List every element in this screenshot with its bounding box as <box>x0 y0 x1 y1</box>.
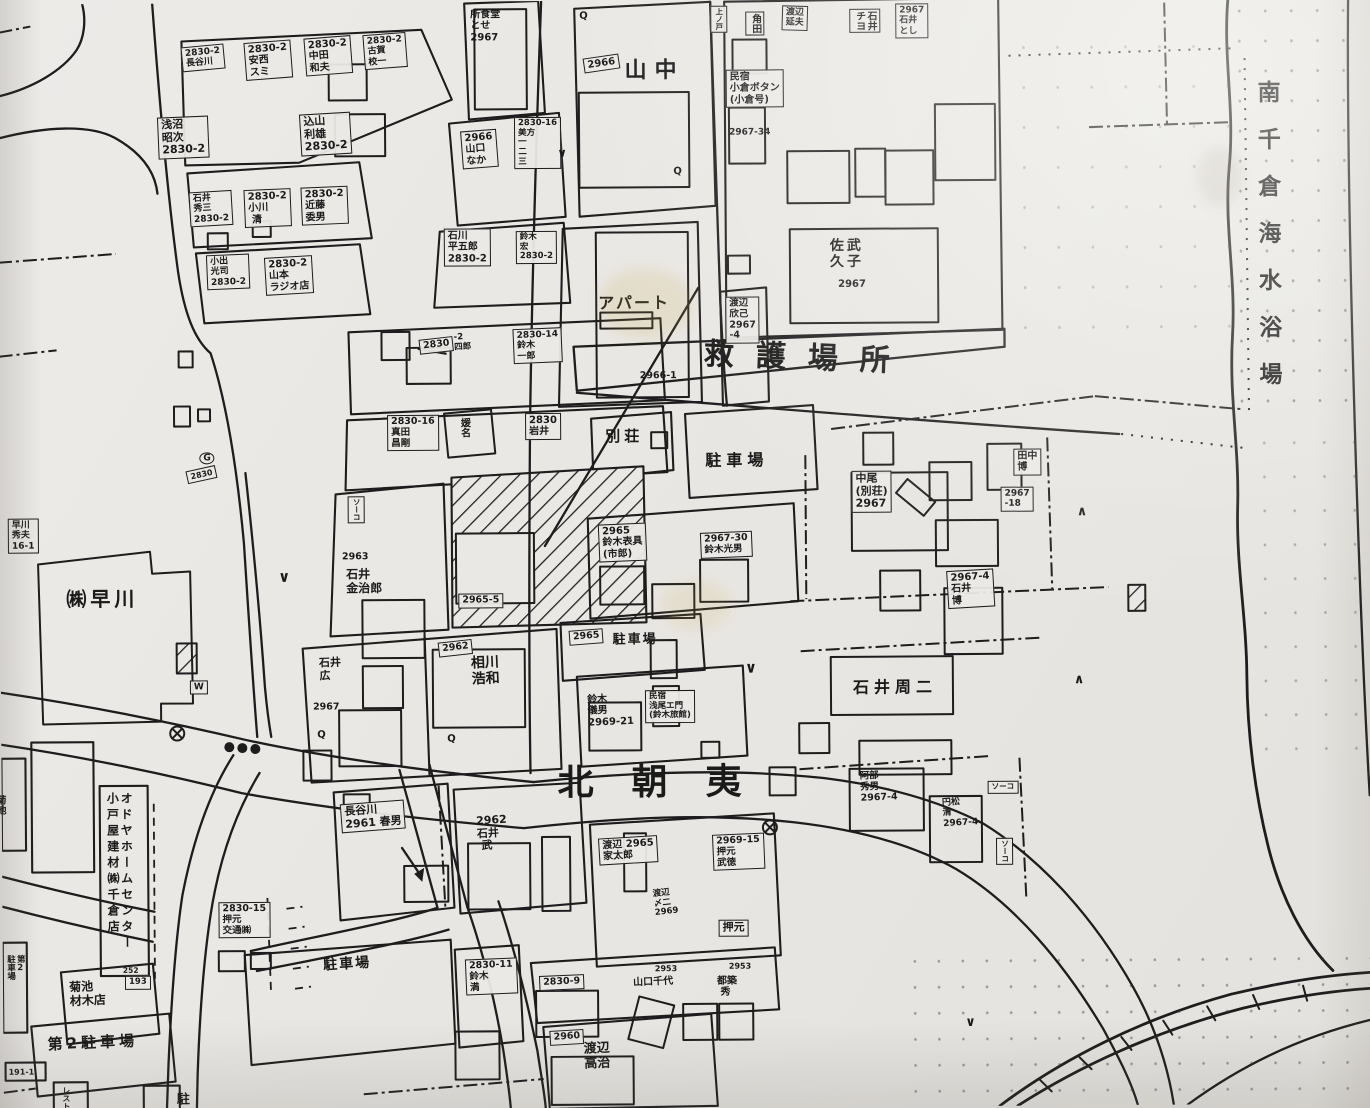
map-label: 2830-2 近藤 委男 <box>300 186 349 226</box>
map-label: 2967 石井 とし <box>895 3 928 38</box>
map-label: 2962 石井 武 <box>476 814 509 853</box>
parking-label: 駐車場 <box>705 451 768 470</box>
map-label: 2953 <box>655 964 677 973</box>
map-label: 相川 浩和 <box>471 655 500 688</box>
map-label: 山中 <box>625 58 685 83</box>
map-label: 2830-11 鈴木 満 <box>465 957 518 996</box>
map-label: 2967-34 <box>729 127 770 138</box>
scanned-map-photo: 2830-2 長谷川2830-2 安西 スミ2830-2 中田 和夫2830-2… <box>0 0 1370 1108</box>
map-label: 早川 秀夫 16-1 <box>8 519 39 554</box>
map-label: 2967 -18 <box>1001 487 1034 512</box>
district-label: 北朝夷 <box>557 761 779 804</box>
map-label: 第2 駐車場 <box>5 955 25 981</box>
parking-label: 駐車場 <box>323 956 372 975</box>
map-label: 252 <box>123 967 139 976</box>
hayakawa-company-label: ㈱早川 <box>66 588 138 611</box>
map-label: レストラン <box>62 1086 71 1108</box>
map-label: オドヤホームセンター 小戸屋建材㈱千倉店 <box>105 792 133 952</box>
map-label: ∨ <box>278 569 290 586</box>
map-label: Q <box>579 11 588 22</box>
map-label: ∧ <box>1074 673 1085 688</box>
dotted-lines <box>1008 48 1249 450</box>
map-label: 菊池 材木店 <box>69 980 106 1009</box>
map-label: 石川 平五郎 2830-2 <box>444 228 491 266</box>
map-label: 渡辺 2965 家太郎 <box>598 835 659 865</box>
map-label: 2830-9 <box>539 974 585 991</box>
map-label: Q <box>317 730 326 741</box>
map-label: 2830-2 中田 和夫 <box>303 35 353 77</box>
map-label: 所食堂 とせ 2967 <box>470 9 500 43</box>
map-label: 石井 秀三 2830-2 <box>188 190 233 227</box>
map-label: 2963 <box>342 552 369 563</box>
map-label: 2830-16 美方 一 二 三 <box>514 117 561 170</box>
map-label: 込山 利雄 2830-2 <box>299 112 352 157</box>
map-label: ∨ <box>745 660 757 677</box>
map-label: W <box>190 680 208 694</box>
map-label: 2830 岩井 <box>525 413 561 440</box>
map-label: 石井 広 <box>319 657 342 683</box>
map-label: 小出 光司 2830-2 <box>206 254 250 291</box>
map-label: 上ノ戸 <box>710 6 727 33</box>
map-label: 2965-5 <box>458 593 503 608</box>
map-sheet: 2830-2 長谷川2830-2 安西 スミ2830-2 中田 和夫2830-2… <box>0 0 1370 1108</box>
map-label: 2967-30 鈴木光男 <box>700 531 753 559</box>
map-label: アパート <box>598 294 670 313</box>
map-label: ソーコ <box>988 781 1019 794</box>
map-label: ∨ <box>557 147 567 161</box>
map-label: 菊池 <box>0 795 5 815</box>
map-label: 2966 山口 なか <box>460 129 499 170</box>
map-label: ∨ <box>965 1016 976 1031</box>
map-label: 2960 <box>549 1029 584 1046</box>
map-label: 193 <box>125 976 151 990</box>
map-label: ∧ <box>1077 505 1088 520</box>
map-label: 2830-2 古賀 校一 <box>362 32 408 70</box>
map-label: 別荘 <box>605 428 643 445</box>
map-label: 角田 <box>745 11 765 35</box>
parking-label: 駐車場 <box>613 633 658 648</box>
map-label: 長谷川 2961 春男 <box>340 799 406 833</box>
map-label: Q <box>447 734 456 745</box>
map-label: 渡辺 〆二 2969 <box>652 888 679 920</box>
map-label: 2830-2 小川 清 <box>243 188 292 228</box>
map-label: 2830-16 真田 昌剛 <box>387 415 439 452</box>
map-label: 田中 博 <box>1013 449 1041 476</box>
map-label: 2830-2 山本 ラジオ店 <box>264 255 314 296</box>
roads <box>0 0 1370 1108</box>
map-label: 駐 <box>177 1093 190 1108</box>
map-label: 2830-15 押元 交通㈱ <box>218 902 270 939</box>
map-label: 浅沼 昭次 2830-2 <box>157 116 210 160</box>
map-label: 2965 <box>569 628 604 645</box>
map-label: ソーコ <box>348 496 365 523</box>
map-label: -2 四郎 <box>453 333 471 353</box>
map-label: 2953 <box>729 962 751 971</box>
map-label: 円松 清 2967-4 <box>942 796 979 829</box>
map-label: 石井周二 <box>853 678 937 697</box>
map-label: 石井 チヨ <box>849 9 880 33</box>
map-line-art <box>0 0 1370 1108</box>
map-label: 2965 鈴木表具 (市郎) <box>598 523 648 563</box>
map-label: 都築 秀 <box>717 976 737 999</box>
map-label: 2830-2 安西 スミ <box>243 39 293 81</box>
map-label: 2830-14 鈴木 一郎 <box>512 327 563 364</box>
map-label: 民宿 浅尾エ門 (鈴木旅館) <box>645 690 695 723</box>
map-label: Q <box>673 166 682 177</box>
map-label: 渡辺 延夫 <box>781 5 808 30</box>
map-label: 2830-2 長谷川 <box>180 43 225 71</box>
map-label: 佐武 久子 <box>830 239 864 271</box>
map-label: 2967 <box>838 279 866 291</box>
map-label: 中尾 (別荘) 2967 <box>851 471 891 513</box>
map-label: 民宿 小倉ボタン (小倉号) <box>726 69 784 108</box>
map-label: 石井 金治郎 <box>346 568 382 596</box>
map-label: 2967-4 石井 博 <box>946 568 995 609</box>
map-label: 鈴木 宏 2830-2 <box>516 231 557 264</box>
map-label: 媛名 <box>458 418 470 438</box>
map-label: 鈴木 儀男 2969-21 <box>587 693 634 729</box>
map-label: 阿部 秀男 2967-4 <box>860 770 898 804</box>
map-label: 押元 <box>719 920 749 937</box>
map-label: 191-1 <box>9 1068 35 1077</box>
map-label: 山口千代 <box>633 976 673 989</box>
map-label: 2967 <box>313 702 340 713</box>
map-label: ソーコ <box>996 838 1013 865</box>
map-label: 2966-1 <box>640 371 677 382</box>
map-label: 2969-15 押元 武徳 <box>712 833 765 872</box>
map-label: 渡辺 高治 <box>583 1042 610 1073</box>
beach-label: 南千倉海水浴場 <box>1253 80 1282 409</box>
